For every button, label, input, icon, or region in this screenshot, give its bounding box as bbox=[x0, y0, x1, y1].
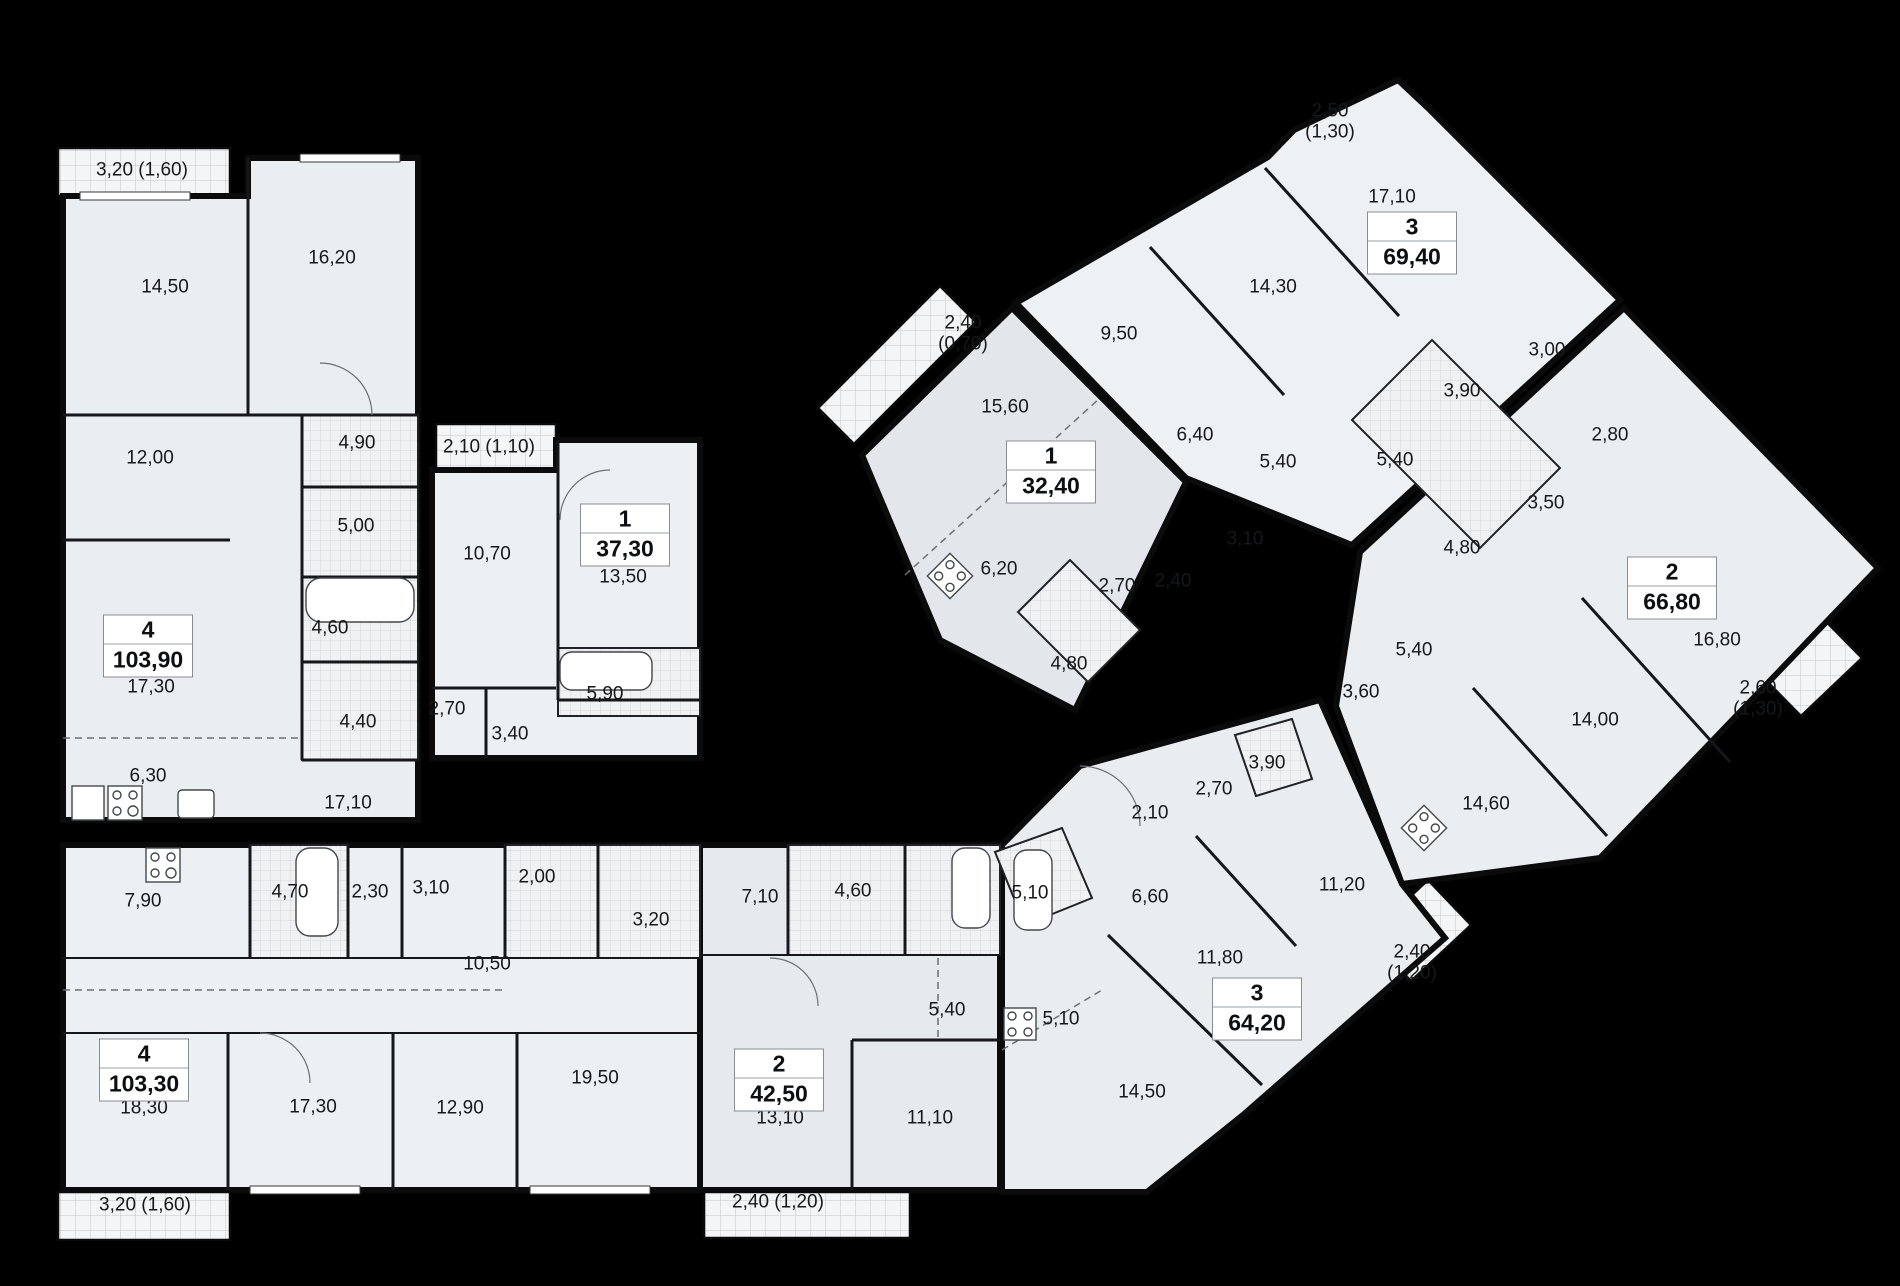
room-area-label: 5,10 bbox=[1012, 882, 1049, 903]
unit-total-area: 32,40 bbox=[1007, 471, 1095, 503]
room-area-label: 13,50 bbox=[599, 566, 647, 587]
unit-total-area: 66,80 bbox=[1628, 587, 1716, 619]
room-area-label: 10,50 bbox=[463, 953, 511, 974]
room-area-label: 5,00 bbox=[338, 515, 375, 536]
unit-rooms-count: 3 bbox=[1213, 979, 1301, 1008]
unit-total-area: 103,30 bbox=[100, 1069, 188, 1101]
unit-total-area: 64,20 bbox=[1213, 1008, 1301, 1040]
room-area-label: 12,90 bbox=[436, 1097, 484, 1118]
unit-badge-32-40: 1 32,40 bbox=[1006, 441, 1096, 504]
room-area-label: 2,10 bbox=[1132, 802, 1169, 823]
stove-icon bbox=[146, 848, 180, 882]
room-area-label: 2,70 bbox=[429, 698, 466, 719]
room-area-label: 11,10 bbox=[907, 1107, 953, 1128]
room-area-label: 5,40 bbox=[1396, 639, 1433, 660]
balcony-area-label: 2,60 (1,30) bbox=[1719, 678, 1797, 721]
room-area-label: 4,80 bbox=[1051, 653, 1088, 674]
room-area-label: 3,00 bbox=[1529, 339, 1566, 360]
floor-plan: 14,50 16,20 12,00 4,90 5,00 4,60 17,30 4… bbox=[0, 0, 1900, 1286]
room-area-label: 2,70 bbox=[1099, 575, 1136, 596]
unit-badge-66-80: 2 66,80 bbox=[1627, 557, 1717, 620]
room-area-label: 14,50 bbox=[1118, 1081, 1166, 1102]
room-area-label: 12,00 bbox=[126, 447, 174, 468]
room-area-label: 11,20 bbox=[1319, 874, 1365, 895]
room-area-label: 19,50 bbox=[571, 1067, 619, 1088]
unit-rooms-count: 1 bbox=[581, 505, 669, 534]
unit-rooms-count: 1 bbox=[1007, 442, 1095, 471]
stove-icon bbox=[108, 786, 142, 820]
room-area-label: 4,70 bbox=[272, 881, 309, 902]
room-area-label: 16,80 bbox=[1693, 629, 1741, 650]
room-area-label: 5,40 bbox=[929, 999, 966, 1020]
room-area-label: 14,60 bbox=[1462, 793, 1510, 814]
unit-total-area: 37,30 bbox=[581, 534, 669, 566]
room-area-label: 3,60 bbox=[1343, 681, 1380, 702]
room-area-label: 3,90 bbox=[1444, 380, 1481, 401]
room-area-label: 5,90 bbox=[587, 683, 624, 704]
room-area-label: 4,40 bbox=[340, 711, 377, 732]
room-area-label: 2,30 bbox=[352, 881, 389, 902]
room-area-label: 4,90 bbox=[339, 432, 376, 453]
room-area-label: 9,50 bbox=[1101, 323, 1138, 344]
unit-total-area: 42,50 bbox=[735, 1079, 823, 1111]
unit-rooms-count: 4 bbox=[100, 1040, 188, 1069]
room-area-label: 14,00 bbox=[1571, 709, 1619, 730]
room-area-label: 2,40 bbox=[1155, 570, 1192, 591]
room-area-label: 7,90 bbox=[125, 890, 162, 911]
unit-badge-103-90: 4 103,90 bbox=[103, 615, 193, 678]
room-area-label: 17,30 bbox=[127, 676, 175, 697]
room-area-label: 5,40 bbox=[1377, 449, 1414, 470]
room-area-label: 14,50 bbox=[141, 276, 189, 297]
room-area-label: 6,40 bbox=[1177, 424, 1214, 445]
unit-badge-37-30: 1 37,30 bbox=[580, 504, 670, 567]
balcony-area-label: 2,50 (1,30) bbox=[1291, 101, 1369, 144]
unit-total-area: 69,40 bbox=[1368, 242, 1456, 274]
room-area-label: 2,70 bbox=[1196, 778, 1233, 799]
room-area-label: 17,10 bbox=[1368, 186, 1416, 207]
bath-tiles-unit-103-30-b bbox=[505, 845, 700, 958]
window bbox=[80, 192, 190, 200]
room-area-label: 17,10 bbox=[324, 792, 372, 813]
room-area-label: 6,20 bbox=[981, 558, 1018, 579]
window bbox=[300, 154, 400, 162]
stove-icon bbox=[1004, 1008, 1036, 1040]
room-area-label: 10,70 bbox=[463, 543, 511, 564]
room-area-label: 2,00 bbox=[519, 866, 556, 887]
unit-rooms-count: 4 bbox=[104, 616, 192, 645]
balcony-area-label: 3,20 (1,60) bbox=[96, 159, 188, 180]
balcony-area-label: 2,40 (1,20) bbox=[1373, 942, 1451, 985]
balcony-area-label: 2,40 (1,20) bbox=[732, 1191, 824, 1212]
bathtub-icon bbox=[952, 848, 990, 928]
room-area-label: 6,60 bbox=[1132, 886, 1169, 907]
room-area-label: 3,50 bbox=[1528, 492, 1565, 513]
room-area-label: 14,30 bbox=[1249, 276, 1297, 297]
unit-rooms-count: 2 bbox=[735, 1050, 823, 1079]
room-area-label: 11,80 bbox=[1197, 947, 1243, 968]
room-area-label: 3,90 bbox=[1249, 752, 1286, 773]
room-area-label: 4,60 bbox=[312, 617, 349, 638]
room-area-label: 5,40 bbox=[1260, 451, 1297, 472]
unit-rooms-count: 2 bbox=[1628, 558, 1716, 587]
room-area-label: 5,10 bbox=[1043, 1008, 1080, 1029]
room-area-label: 7,10 bbox=[742, 886, 779, 907]
room-area-label: 6,30 bbox=[130, 765, 167, 786]
room-area-label: 2,80 bbox=[1592, 424, 1629, 445]
room-area-label: 15,60 bbox=[981, 396, 1029, 417]
room-area-label: 16,20 bbox=[308, 247, 356, 268]
unit-total-area: 103,90 bbox=[104, 645, 192, 677]
window bbox=[250, 1186, 360, 1194]
unit-badge-42-50: 2 42,50 bbox=[734, 1049, 824, 1112]
window bbox=[530, 1186, 650, 1194]
unit-badge-103-30: 4 103,30 bbox=[99, 1039, 189, 1102]
bathtub-icon bbox=[306, 578, 414, 622]
balcony-area-label: 3,20 (1,60) bbox=[99, 1194, 191, 1215]
balcony-area-label: 2,40 (0,70) bbox=[924, 313, 1002, 356]
room-area-label: 3,40 bbox=[492, 723, 529, 744]
unit-badge-69-40: 3 69,40 bbox=[1367, 212, 1457, 275]
room-area-label: 3,10 bbox=[413, 877, 450, 898]
room-area-label: 4,80 bbox=[1444, 537, 1481, 558]
unit-rooms-count: 3 bbox=[1368, 213, 1456, 242]
floor-plan-drawing bbox=[0, 0, 1900, 1286]
room-area-label: 4,60 bbox=[835, 880, 872, 901]
room-area-label: 17,30 bbox=[289, 1096, 337, 1117]
room-area-label: 3,20 bbox=[633, 909, 670, 930]
unit-badge-64-20: 3 64,20 bbox=[1212, 978, 1302, 1041]
room-area-label: 3,10 bbox=[1227, 528, 1264, 549]
fridge-icon bbox=[72, 786, 104, 820]
balcony-area-label: 2,10 (1,10) bbox=[443, 436, 535, 457]
sink-icon bbox=[178, 790, 214, 818]
